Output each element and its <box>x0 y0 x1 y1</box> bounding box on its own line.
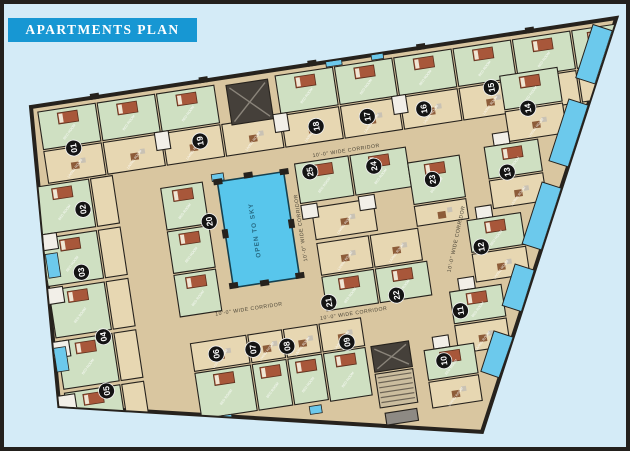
building: BED ROOMBED ROOMBED ROOMBED ROOMBED ROOM… <box>13 13 630 451</box>
toilet <box>154 131 171 151</box>
unit-number: 17 <box>362 111 373 122</box>
unit-number: 06 <box>211 348 222 359</box>
toilet <box>392 95 409 115</box>
unit-number: 01 <box>68 142 79 153</box>
page-title: APARTMENTS PLAN <box>25 22 179 38</box>
chair <box>447 207 453 213</box>
bedroom <box>334 58 397 104</box>
unit-number: 16 <box>418 103 429 114</box>
bedroom <box>275 67 338 113</box>
unit-number: 03 <box>76 267 87 278</box>
bedroom <box>350 147 411 195</box>
unit-number: 19 <box>194 135 205 146</box>
table <box>437 211 446 219</box>
unit-number: 12 <box>475 241 486 252</box>
title-banner: APARTMENTS PLAN <box>8 18 197 42</box>
room-label: LIVING ROOM <box>597 77 614 98</box>
chair <box>610 77 616 83</box>
toilet <box>358 194 376 210</box>
balcony <box>220 414 233 424</box>
unit-number: 23 <box>427 174 438 185</box>
unit-number: 02 <box>77 204 88 215</box>
unit-number: 09 <box>341 336 352 347</box>
bedroom <box>97 94 160 140</box>
bedroom <box>156 85 219 131</box>
bedroom <box>394 49 457 95</box>
unit-number: 20 <box>204 216 215 227</box>
unit-number: 15 <box>486 82 497 93</box>
unit-number: 25 <box>304 166 315 177</box>
unit-number: 11 <box>455 305 466 316</box>
toilet <box>57 394 77 413</box>
unit-number: 24 <box>368 160 379 171</box>
unit-number: 07 <box>247 344 258 355</box>
apartments-floor-plan: BED ROOMBED ROOMBED ROOMBED ROOMBED ROOM… <box>4 4 630 451</box>
balcony <box>309 405 322 415</box>
unit-number: 18 <box>310 121 321 132</box>
room-label: BED ROOM <box>89 409 103 426</box>
unit-number: 22 <box>391 289 402 300</box>
bedroom <box>295 156 354 204</box>
table <box>601 81 610 89</box>
unit-number: 10 <box>438 355 449 366</box>
unit-number: 05 <box>101 385 112 396</box>
screenshot-frame: APARTMENTS PLAN BED ROOMBED ROOMBED ROOM… <box>0 0 630 451</box>
toilet <box>273 113 290 133</box>
unit-number: 14 <box>522 103 533 114</box>
toilet <box>301 203 319 219</box>
unit-number: 13 <box>502 166 513 177</box>
unit-number: 04 <box>98 331 109 342</box>
unit-number: 08 <box>281 341 292 352</box>
unit-number: 21 <box>323 297 334 308</box>
